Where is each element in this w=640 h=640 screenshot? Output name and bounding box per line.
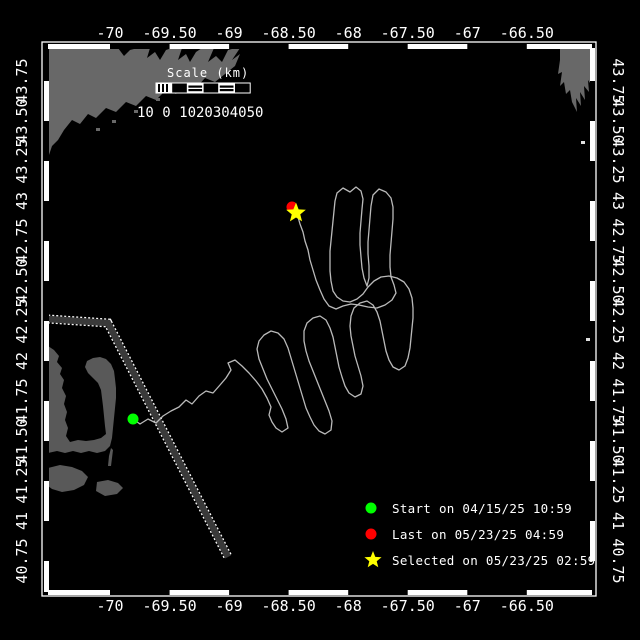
lon-tick-label-bottom: -67.50 [381, 597, 435, 615]
lat-tick-label-right: 43.50 [609, 98, 627, 143]
lat-tick-label-right: 43.75 [609, 58, 627, 103]
lat-tick-label-left: 43 [13, 192, 31, 210]
zebra-segment [48, 44, 110, 49]
lat-tick-label-right: 41.75 [609, 378, 627, 423]
lat-tick-label-right: 42.50 [609, 258, 627, 303]
lon-tick-label-bottom: -69.50 [142, 597, 196, 615]
lon-tick-label-bottom: -67 [454, 597, 481, 615]
lat-tick-label-right: 42 [609, 352, 627, 370]
scale-hatch-stripe [162, 84, 164, 92]
small-island-mark [581, 141, 585, 144]
zebra-segment [170, 590, 230, 595]
zebra-segment [408, 44, 468, 49]
scale-band-stripe [188, 89, 202, 91]
lat-tick-label-right: 41.50 [609, 418, 627, 463]
legend-start-label: Start on 04/15/25 10:59 [392, 501, 572, 516]
zebra-segment [590, 201, 595, 241]
scale-segment-black [235, 83, 251, 93]
scale-bar-title: Scale (km) [167, 66, 249, 80]
lon-tick-label-bottom: -68.50 [262, 597, 316, 615]
lat-tick-label-left: 41.25 [13, 458, 31, 503]
legend-selected-label: Selected on 05/23/25 02:59 [392, 553, 595, 568]
zebra-segment [170, 44, 230, 49]
small-island-mark [96, 128, 100, 131]
legend: Start on 04/15/25 10:59 Last on 05/23/25… [364, 501, 595, 568]
scale-segment-black [203, 83, 219, 93]
start-position-marker[interactable] [128, 414, 139, 425]
zebra-segment [44, 161, 49, 201]
lon-tick-label-top: -68 [335, 24, 362, 42]
lat-tick-label-left: 42 [13, 352, 31, 370]
lon-tick-label-top: -69 [216, 24, 243, 42]
legend-last-label: Last on 05/23/25 04:59 [392, 527, 564, 542]
small-island-mark [586, 338, 590, 341]
lon-tick-label-bottom: -66.50 [500, 597, 554, 615]
lat-tick-label-left: 43.25 [13, 138, 31, 183]
lat-tick-label-right: 42.25 [609, 298, 627, 343]
zebra-segment [590, 48, 595, 81]
lat-tick-label-left: 43.75 [13, 58, 31, 103]
scale-band-stripe [220, 86, 234, 88]
zebra-segment [44, 401, 49, 441]
scale-segment-band [219, 83, 235, 93]
lon-tick-label-top: -69.50 [142, 24, 196, 42]
lat-tick-label-right: 43.25 [609, 138, 627, 183]
lat-tick-label-right: 43 [609, 192, 627, 210]
legend-last-marker-icon [366, 529, 377, 540]
zebra-segment [590, 441, 595, 481]
zebra-segment [48, 590, 110, 595]
lon-tick-label-top: -67 [454, 24, 481, 42]
zebra-segment [590, 121, 595, 161]
lat-tick-label-left: 41.75 [13, 378, 31, 423]
scale-hatch-stripe [166, 84, 168, 92]
zebra-segment [44, 321, 49, 361]
zebra-segment [289, 590, 349, 595]
zebra-segment [527, 44, 592, 49]
lat-tick-label-left: 42.25 [13, 298, 31, 343]
scale-band-stripe [188, 86, 202, 88]
scale-segment-black [172, 83, 188, 93]
lon-tick-label-bottom: -68 [335, 597, 362, 615]
scale-band-stripe [220, 89, 234, 91]
scale-segment-band [187, 83, 203, 93]
lon-tick-label-bottom: -69 [216, 597, 243, 615]
zebra-segment [44, 241, 49, 281]
lon-tick-label-bottom: -70 [96, 597, 123, 615]
map-window: -70-70-69.50-69.50-69-69-68.50-68.50-68-… [0, 0, 640, 640]
lon-tick-label-top: -70 [96, 24, 123, 42]
legend-start-marker-icon [366, 503, 377, 514]
zebra-segment [590, 361, 595, 401]
zebra-segment [590, 281, 595, 321]
zebra-segment [527, 590, 592, 595]
lat-tick-label-left: 40.75 [13, 538, 31, 583]
lat-tick-label-right: 41 [609, 512, 627, 530]
lat-tick-label-left: 41.50 [13, 418, 31, 463]
lon-tick-label-top: -67.50 [381, 24, 435, 42]
small-island-mark [112, 120, 116, 123]
lat-tick-label-left: 43.50 [13, 98, 31, 143]
lat-tick-label-left: 42.75 [13, 218, 31, 263]
scale-bar-values: 10 0 1020304050 [137, 105, 263, 121]
zebra-segment [44, 481, 49, 521]
lat-tick-label-left: 42.50 [13, 258, 31, 303]
zebra-segment [44, 81, 49, 121]
zebra-segment [44, 561, 49, 592]
zebra-segment [408, 590, 468, 595]
lat-tick-label-right: 41.25 [609, 458, 627, 503]
small-island-mark [156, 98, 160, 101]
lat-tick-label-left: 41 [13, 512, 31, 530]
lon-tick-label-top: -68.50 [262, 24, 316, 42]
zebra-segment [289, 44, 349, 49]
lat-tick-label-right: 40.75 [609, 538, 627, 583]
lat-tick-label-right: 42.75 [609, 218, 627, 263]
scale-bar-graphic [156, 83, 250, 93]
lon-tick-label-top: -66.50 [500, 24, 554, 42]
map-canvas: -70-70-69.50-69.50-69-69-68.50-68.50-68-… [0, 0, 640, 640]
scale-hatch-stripe [158, 84, 160, 92]
